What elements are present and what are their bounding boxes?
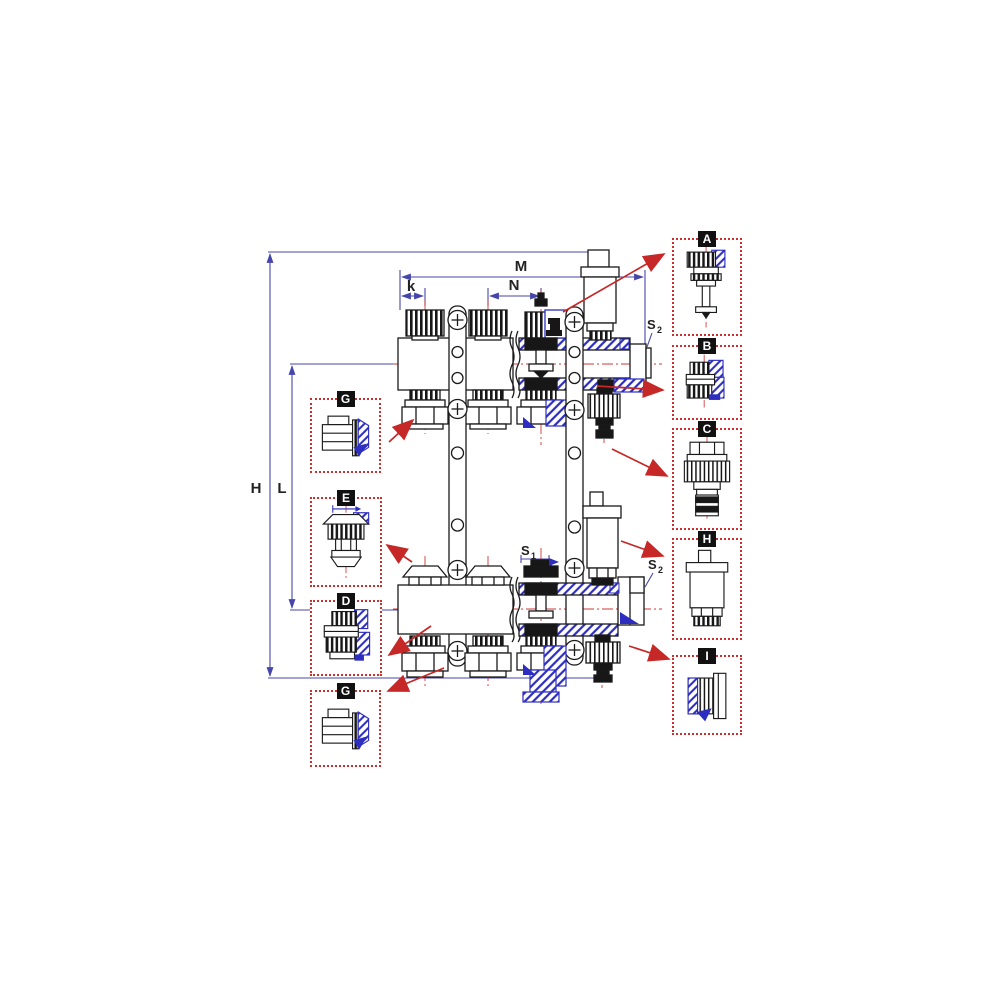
svg-text:1: 1: [531, 551, 536, 561]
outlet-fitting: [465, 636, 511, 677]
flowmeter-cap: [403, 566, 447, 585]
leader-arrow-i: [629, 646, 669, 659]
valve-sectioned-bottom: [524, 558, 559, 636]
rail-right: [566, 307, 583, 665]
svg-text:2: 2: [658, 565, 663, 575]
label-s2-bottom: S 2: [648, 557, 663, 575]
leader-s2-bottom: [645, 573, 653, 587]
bottom-manifold-body: [398, 585, 513, 634]
detail-icon-end-cap: [674, 657, 740, 733]
callout-box-b: B: [672, 345, 742, 420]
svg-text:S: S: [647, 317, 656, 332]
leader-arrow-g1: [389, 420, 413, 442]
label-s1: S 1: [521, 543, 536, 561]
label-m: M: [515, 258, 528, 275]
callout-label-c: C: [698, 421, 716, 437]
callout-box-c: C: [672, 428, 742, 530]
valve-knob: [469, 310, 507, 340]
callout-box-i: I: [672, 655, 742, 735]
detail-icon-drain-valve: [674, 430, 740, 528]
detail-icon-euroconus-adapter: [312, 400, 379, 471]
callout-label-g1: G: [337, 391, 355, 407]
outlet-fitting-sectioned: [517, 390, 567, 428]
svg-text:S: S: [521, 543, 530, 558]
leader-arrow-e: [387, 545, 412, 562]
detail-icon-threaded-adapter: [312, 602, 380, 674]
label-k: k: [407, 278, 416, 295]
leader-arrow-h: [621, 541, 663, 556]
label-n: N: [509, 277, 520, 294]
callout-label-i: I: [698, 648, 716, 664]
valve-knob: [406, 310, 444, 340]
detail-icon-air-vent: [674, 540, 740, 638]
callout-box-d: D: [310, 600, 382, 676]
callout-label-h: H: [698, 531, 716, 547]
air-vent-top: [581, 250, 619, 340]
label-l: L: [277, 480, 286, 497]
detail-icon-euroconus-adapter: [312, 692, 379, 765]
label-h: H: [251, 480, 262, 497]
detail-icon-flowmeter-insert: [312, 499, 380, 585]
outlet-fitting-sectioned: [517, 636, 566, 702]
callout-box-g2: G: [310, 690, 381, 767]
callout-box-a: A: [672, 238, 742, 336]
label-s2-top: S 2: [647, 317, 662, 335]
svg-text:S: S: [648, 557, 657, 572]
svg-text:2: 2: [657, 325, 662, 335]
bottom-manifold: [398, 492, 644, 702]
top-manifold: [398, 250, 651, 438]
leader-s2-top: [647, 333, 652, 347]
callout-label-d: D: [337, 593, 355, 609]
manifold-diagram: H L M k N S 1 S 2 S 2 A B: [0, 0, 1000, 1000]
callout-label-g2: G: [337, 683, 355, 699]
main-drawing: H L M k N S 1 S 2 S 2: [0, 0, 1000, 1000]
end-cap-bottom: [610, 577, 644, 625]
detail-icon-valve-insert: [674, 240, 740, 334]
callout-box-g1: G: [310, 398, 381, 473]
leader-arrow-c: [612, 449, 667, 476]
callout-box-e: E: [310, 497, 382, 587]
callout-box-h: H: [672, 538, 742, 640]
callout-label-b: B: [698, 338, 716, 354]
drain-valve-bottom: [586, 635, 620, 682]
detail-icon-connection-fitting: [674, 347, 740, 418]
callout-label-a: A: [698, 231, 716, 247]
outlet-fitting: [465, 390, 511, 429]
air-vent-bottom: [583, 492, 621, 585]
callout-label-e: E: [337, 490, 355, 506]
flowmeter-cap: [466, 566, 510, 585]
drain-valve-top: [588, 388, 620, 438]
